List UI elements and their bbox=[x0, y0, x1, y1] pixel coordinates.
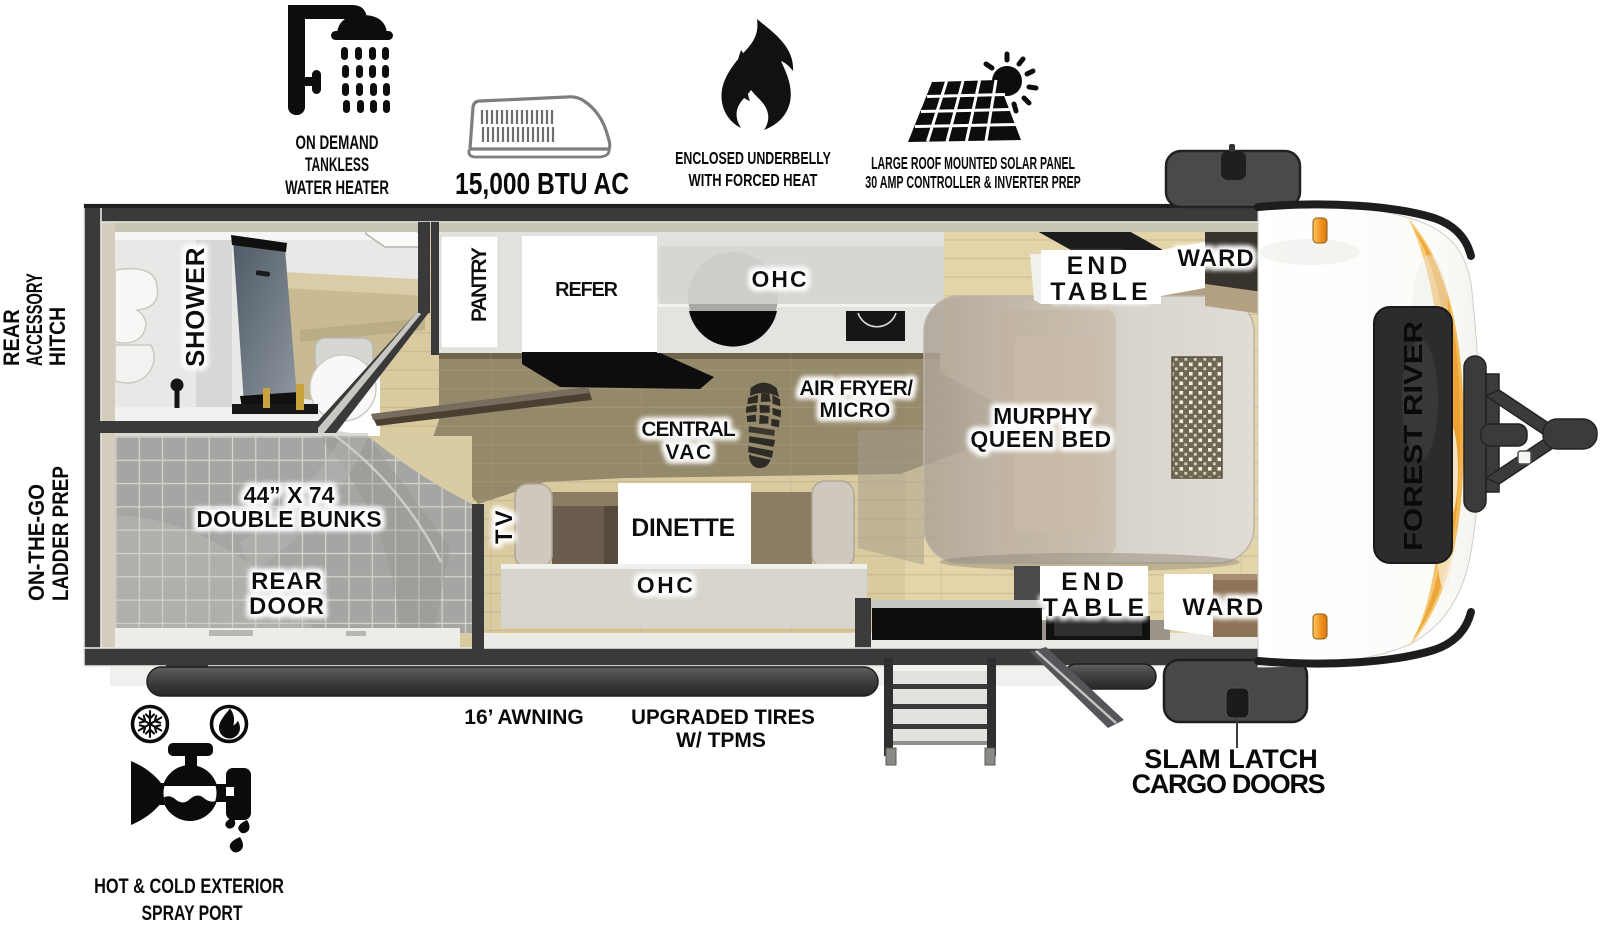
svg-text:TV: TV bbox=[491, 507, 518, 544]
svg-text:LARGE ROOF MOUNTED SOLAR PANEL: LARGE ROOF MOUNTED SOLAR PANEL bbox=[871, 154, 1075, 174]
svg-text:CENTRAL: CENTRAL bbox=[641, 418, 735, 441]
svg-text:PANTRY: PANTRY bbox=[468, 247, 491, 322]
svg-text:WARD: WARD bbox=[1177, 245, 1254, 272]
svg-text:30 AMP CONTROLLER & INVERTER P: 30 AMP CONTROLLER & INVERTER PREP bbox=[865, 173, 1081, 192]
svg-text:TABLE: TABLE bbox=[1043, 594, 1149, 622]
svg-text:FOREST RIVER: FOREST RIVER bbox=[1398, 321, 1428, 551]
svg-text:END: END bbox=[1061, 568, 1129, 596]
svg-text:MICRO: MICRO bbox=[820, 399, 891, 422]
svg-text:QUEEN BED: QUEEN BED bbox=[970, 426, 1111, 452]
svg-text:ENCLOSED UNDERBELLY: ENCLOSED UNDERBELLY bbox=[675, 149, 831, 169]
svg-text:REFER: REFER bbox=[555, 279, 619, 301]
svg-text:HOT & COLD EXTERIOR: HOT & COLD EXTERIOR bbox=[94, 874, 284, 897]
svg-text:HITCH: HITCH bbox=[46, 307, 70, 366]
svg-text:END: END bbox=[1067, 252, 1132, 280]
svg-text:REAR: REAR bbox=[0, 309, 24, 366]
svg-text:ACCESSORY: ACCESSORY bbox=[22, 273, 47, 366]
svg-text:16’ AWNING: 16’ AWNING bbox=[464, 706, 583, 729]
svg-text:W/ TPMS: W/ TPMS bbox=[676, 729, 766, 752]
svg-text:15,000 BTU AC: 15,000 BTU AC bbox=[455, 166, 629, 200]
svg-text:SHOWER: SHOWER bbox=[180, 247, 210, 367]
svg-text:TABLE: TABLE bbox=[1050, 278, 1151, 306]
svg-text:WARD: WARD bbox=[1182, 594, 1265, 621]
svg-text:44” X 74: 44” X 74 bbox=[244, 482, 335, 508]
svg-text:UPGRADED TIRES: UPGRADED TIRES bbox=[631, 706, 815, 729]
svg-text:DOUBLE BUNKS: DOUBLE BUNKS bbox=[196, 506, 381, 532]
svg-text:TANKLESS: TANKLESS bbox=[305, 155, 369, 175]
svg-text:DINETTE: DINETTE bbox=[631, 514, 734, 542]
svg-text:REAR: REAR bbox=[251, 568, 323, 595]
svg-text:DOOR: DOOR bbox=[249, 593, 325, 620]
svg-text:AIR FRYER/: AIR FRYER/ bbox=[799, 377, 913, 400]
svg-text:SPRAY PORT: SPRAY PORT bbox=[141, 901, 243, 925]
svg-text:CARGO DOORS: CARGO DOORS bbox=[1132, 769, 1325, 799]
svg-text:OHC: OHC bbox=[751, 266, 808, 292]
svg-text:WITH FORCED HEAT: WITH FORCED HEAT bbox=[689, 171, 818, 191]
svg-text:VAC: VAC bbox=[665, 441, 712, 464]
svg-text:WATER HEATER: WATER HEATER bbox=[285, 178, 389, 199]
svg-text:LADDER PREP: LADDER PREP bbox=[49, 466, 74, 601]
svg-text:ON-THE-GO: ON-THE-GO bbox=[24, 484, 49, 601]
svg-text:OHC: OHC bbox=[637, 572, 696, 598]
svg-text:ON DEMAND: ON DEMAND bbox=[296, 133, 379, 154]
